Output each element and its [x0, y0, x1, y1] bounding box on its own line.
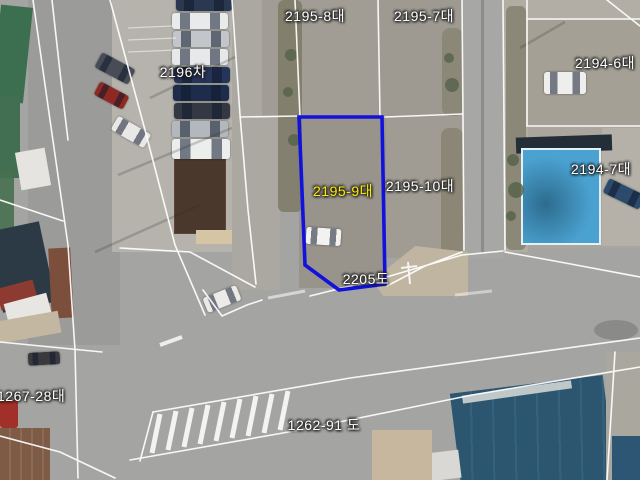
parcel-label-2195-7: 2195-7대	[394, 6, 454, 26]
parcel-label-2205: 2205도	[343, 269, 390, 289]
parcel-label-2194-7: 2194-7대	[571, 159, 631, 179]
parcel-label-2195-9-highlighted: 2195-9대	[313, 181, 373, 201]
parcel-label-2194-6: 2194-6대	[575, 53, 635, 73]
parcel-label-1262-91: 1262-91 도	[288, 415, 361, 435]
parcel-label-1267-28: 1267-28대	[0, 386, 65, 406]
utility-pole	[401, 262, 417, 284]
cadastral-lines-overlay	[0, 0, 640, 480]
highlighted-parcel-outline[interactable]	[299, 117, 385, 290]
parcel-label-2195-8: 2195-8대	[285, 6, 345, 26]
parcel-label-2196: 2196차	[160, 62, 207, 82]
aerial-map-canvas[interactable]: 2195-8대 2195-7대 2196차 2194-6대 2194-7대 21…	[0, 0, 640, 480]
parcel-label-2195-10: 2195-10대	[386, 176, 454, 196]
